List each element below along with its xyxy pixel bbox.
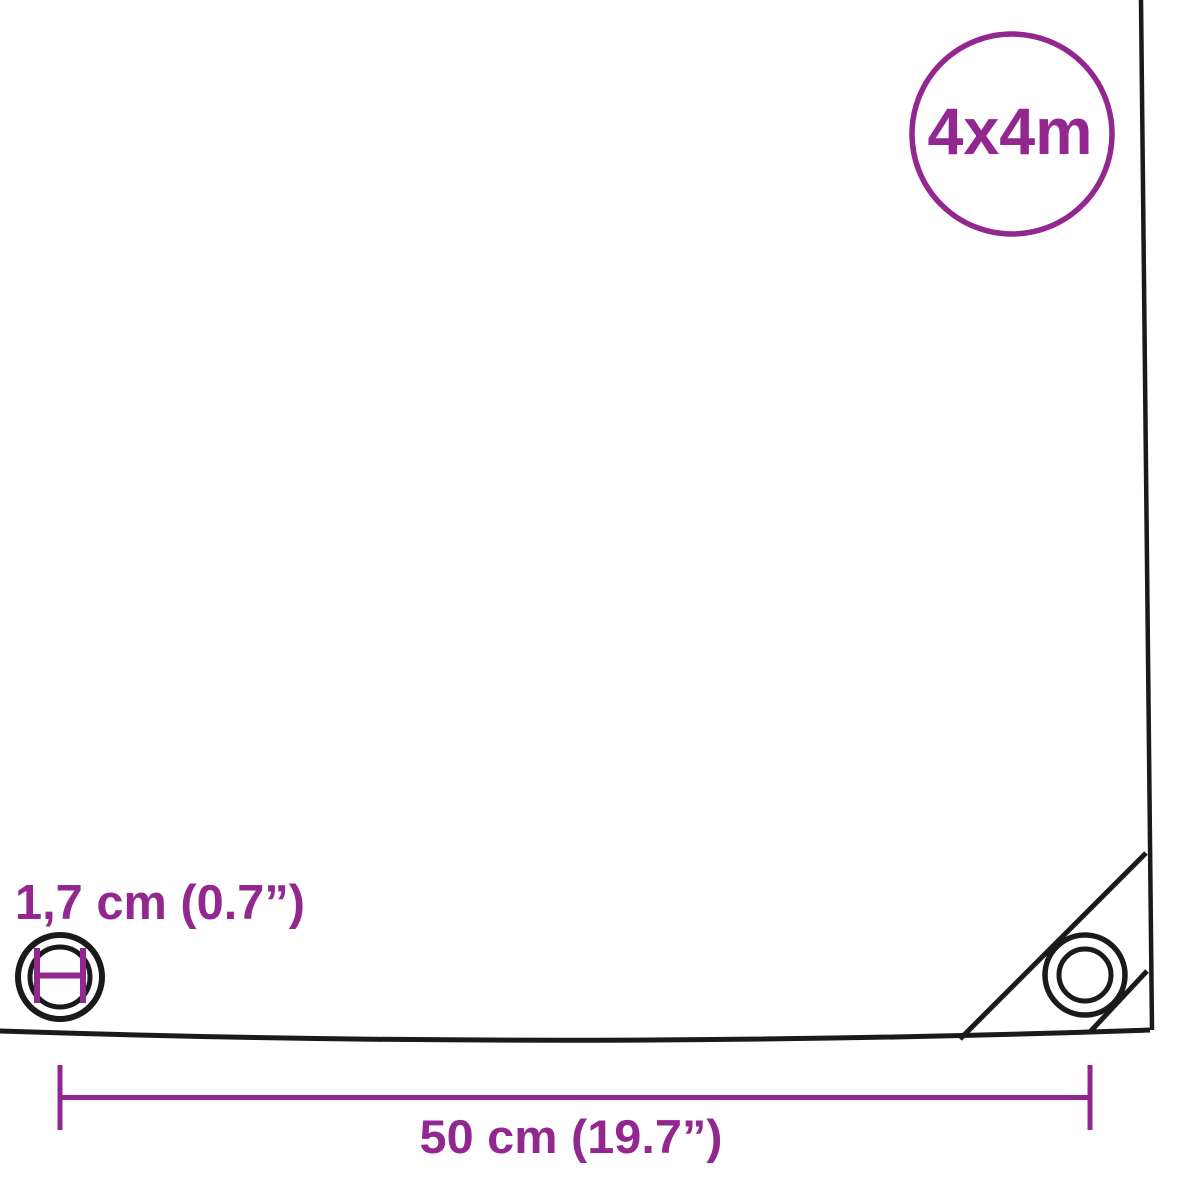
- diameter-marker-icon: [37, 948, 83, 1003]
- grommet-spacing-label: 50 cm (19.7”): [420, 1110, 723, 1163]
- size-badge: 4x4m: [912, 34, 1112, 234]
- grommet-diameter-label: 1,7 cm (0.7”): [15, 876, 305, 930]
- tarp-bottom-edge: [0, 1030, 1150, 1040]
- tarp-right-edge: [1141, 0, 1152, 1030]
- diagram-drawing: 1,7 cm (0.7”) 50 cm (19.7”) 4x4m: [0, 0, 1200, 1200]
- grommet-diameter-icon: [18, 935, 102, 1019]
- corner-grommet-inner-ring: [1059, 949, 1111, 1001]
- product-dimension-diagram: 1,7 cm (0.7”) 50 cm (19.7”) 4x4m: [0, 0, 1200, 1200]
- corner-fold-diagonal: [960, 853, 1146, 1039]
- corner-grommet-icon: [1045, 935, 1125, 1015]
- size-badge-label: 4x4m: [928, 94, 1093, 168]
